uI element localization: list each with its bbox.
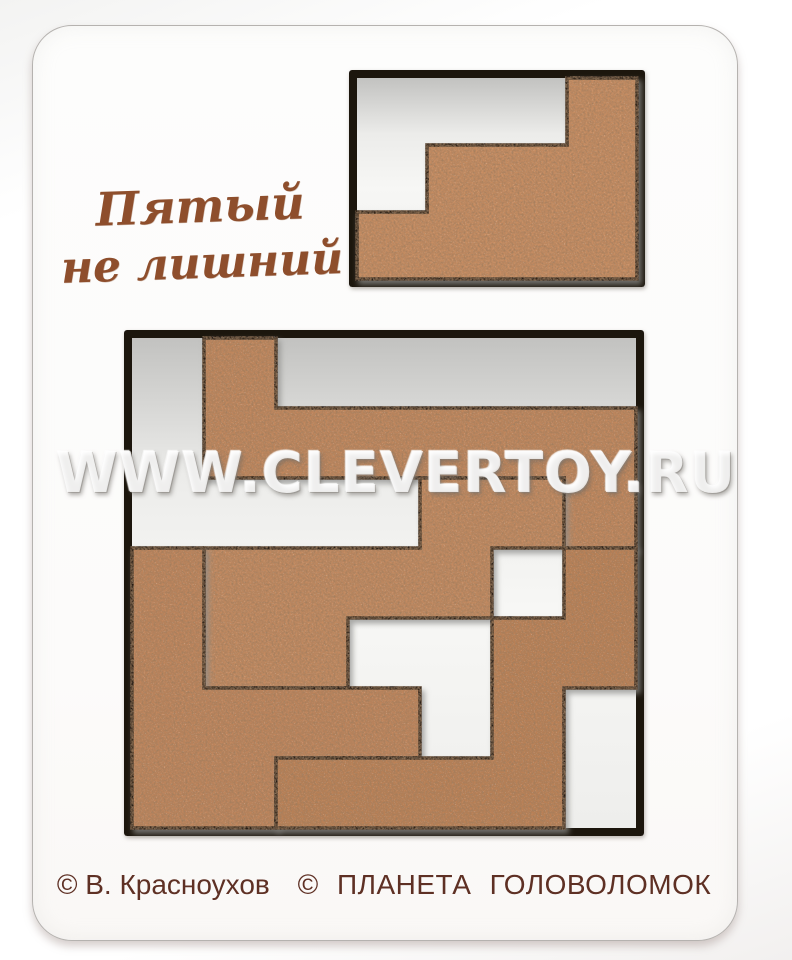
copyright-line: © В. Красноухов © ПЛАНЕТА ГОЛОВОЛОМОК — [32, 869, 736, 901]
puzzle-title-line1: Пятый — [56, 173, 344, 240]
product-photo: { "photo": { "title": { "line1": "Пятый"… — [0, 0, 792, 960]
puzzle-title-line2: не лишний — [58, 231, 346, 296]
copyright-publisher: © ПЛАНЕТА ГОЛОВОЛОМОК — [298, 869, 712, 900]
copyright-author: © В. Красноухов — [57, 869, 270, 900]
watermark-text: WWW.CLEVERTOY.RU — [0, 441, 792, 506]
puzzle-title: Пятый не лишний — [56, 173, 346, 295]
